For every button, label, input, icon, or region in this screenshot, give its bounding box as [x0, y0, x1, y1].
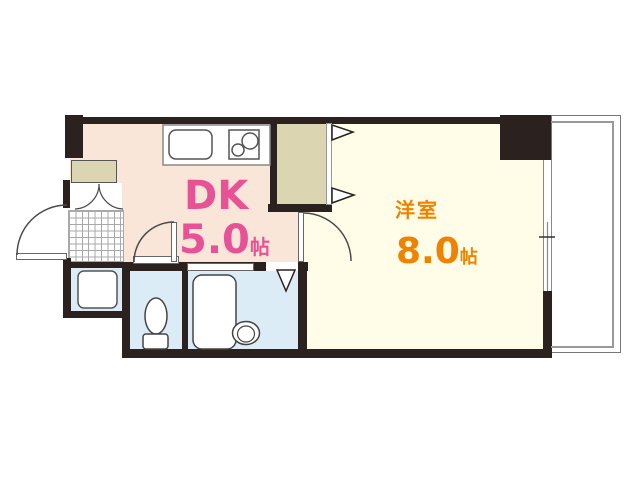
wall — [298, 262, 307, 350]
wall — [122, 262, 130, 352]
dk-size-value: 5.0 — [179, 220, 250, 260]
sliding-window — [543, 160, 552, 291]
washing-machine-area — [71, 268, 122, 312]
wall — [63, 311, 122, 318]
toilet-room — [130, 266, 182, 350]
wall — [63, 262, 122, 268]
wall — [182, 266, 188, 350]
dk-room-size: 5.0 帖 — [179, 220, 270, 260]
western-room-size: 8.0 帖 — [396, 234, 478, 270]
bathroom-door-leaf — [187, 263, 254, 271]
dk-size-unit: 帖 — [250, 237, 270, 260]
wall — [122, 349, 552, 358]
western-room-label: 洋室 — [395, 200, 439, 220]
shoe-cabinet-door-area — [70, 183, 122, 210]
genkan-tile — [68, 210, 124, 262]
wall — [65, 115, 83, 158]
dk-room-label: DK — [184, 176, 248, 216]
entrance-door-leaf — [16, 253, 67, 260]
floor-plan: DK 5.0 帖 洋室 8.0 帖 — [0, 0, 640, 480]
wall — [500, 115, 551, 160]
western-size-value: 8.0 — [396, 234, 460, 270]
bathroom — [188, 266, 298, 350]
entrance-door-arc — [17, 205, 67, 255]
closet-area — [277, 123, 331, 205]
wall — [270, 117, 277, 212]
dk-door-leaf — [171, 222, 177, 262]
wall — [63, 180, 70, 208]
shoe-cabinet — [71, 160, 117, 183]
closet-door-strip — [326, 123, 332, 205]
balcony — [551, 115, 621, 353]
western-room-door-leaf — [298, 212, 304, 262]
wall — [268, 204, 332, 212]
bathroom-opening — [266, 262, 298, 271]
wall — [65, 117, 502, 124]
western-size-unit: 帖 — [460, 249, 478, 270]
wall — [543, 291, 552, 352]
